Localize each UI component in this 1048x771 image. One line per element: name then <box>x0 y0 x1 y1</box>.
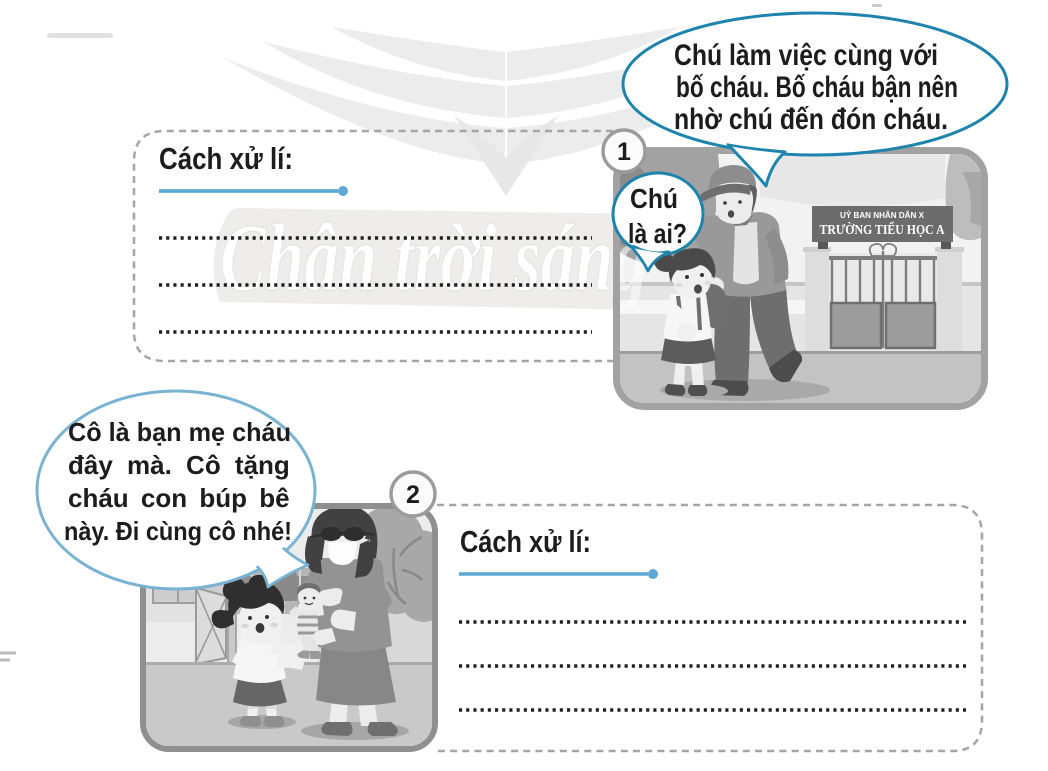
svg-text:Chân trời sáng: Chân trời sáng <box>220 204 648 311</box>
svg-text:Cách xử lí:: Cách xử lí: <box>460 524 591 559</box>
svg-text:TRƯỜNG TIỂU HỌC A: TRƯỜNG TIỂU HỌC A <box>820 220 946 238</box>
svg-text:Chú: Chú <box>630 183 678 214</box>
svg-text:là ai?: là ai? <box>628 218 687 249</box>
svg-text:1: 1 <box>617 138 631 166</box>
svg-text:2: 2 <box>406 481 420 509</box>
svg-text:đây mà. Cô tặng: đây mà. Cô tặng <box>68 450 290 480</box>
svg-text:bố cháu. Bố cháu bận nên: bố cháu. Bố cháu bận nên <box>676 71 958 104</box>
svg-text:Cô là bạn mẹ cháu: Cô là bạn mẹ cháu <box>68 417 291 447</box>
svg-text:Chú làm việc cùng với: Chú làm việc cùng với <box>674 39 938 72</box>
svg-text:Cách xử lí:: Cách xử lí: <box>159 141 293 176</box>
svg-text:này. Đi cùng cô nhé!: này. Đi cùng cô nhé! <box>64 516 292 546</box>
svg-text:UỶ BAN NHÂN DÂN X: UỶ BAN NHÂN DÂN X <box>840 211 925 220</box>
svg-text:cháu con búp bê: cháu con búp bê <box>68 483 290 513</box>
svg-text:nhờ chú đến đón cháu.: nhờ chú đến đón cháu. <box>674 103 948 136</box>
